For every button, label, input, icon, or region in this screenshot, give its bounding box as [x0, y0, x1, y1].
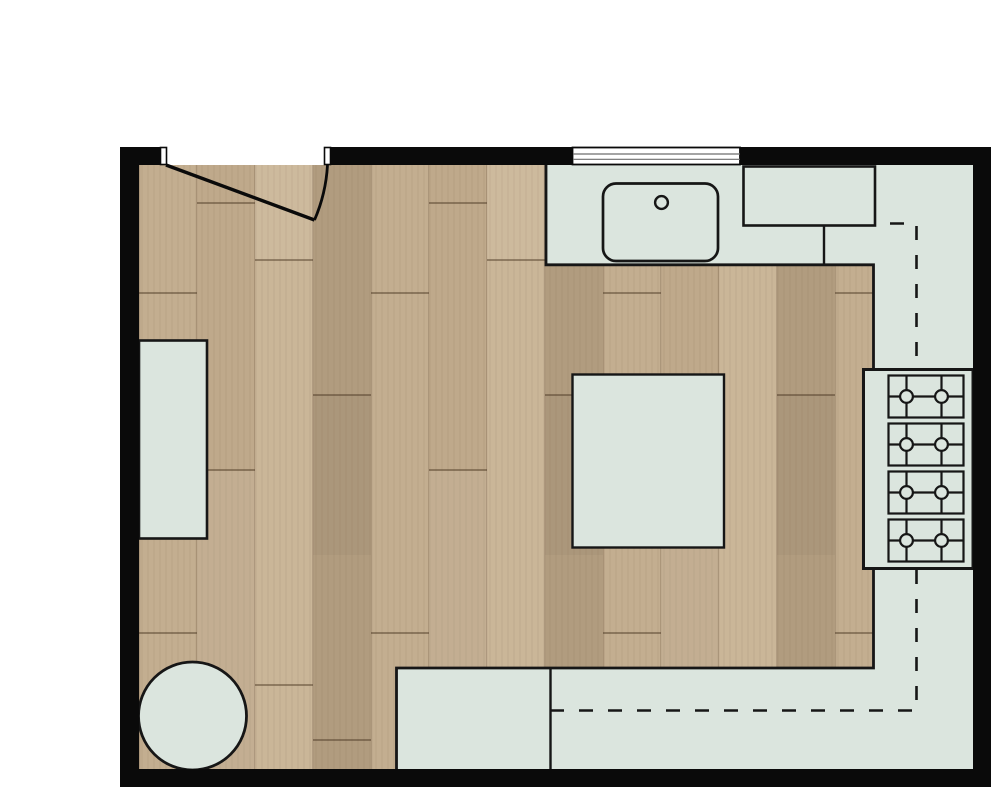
- window: [573, 148, 741, 165]
- round-table: [139, 662, 247, 770]
- wall-left: [120, 147, 139, 787]
- built-in-appliance: [744, 167, 876, 226]
- bottom-counter: [397, 668, 974, 769]
- burner-icon: [935, 390, 948, 403]
- burner-module: [889, 520, 964, 562]
- burner-icon: [900, 534, 913, 547]
- burner-icon: [900, 390, 913, 403]
- door-jamb-left: [161, 148, 167, 165]
- kitchen-island: [573, 375, 725, 548]
- door-jamb-right: [325, 148, 331, 165]
- burner-icon: [900, 486, 913, 499]
- wall-top-right: [740, 147, 991, 165]
- kitchen-floor-plan: [0, 0, 1000, 796]
- kitchen-sink: [603, 184, 718, 262]
- window-frame: [573, 148, 741, 165]
- burner-module: [889, 376, 964, 418]
- burner-icon: [900, 438, 913, 451]
- wall-bottom: [120, 769, 991, 787]
- side-cabinet: [139, 341, 207, 539]
- burner-icon: [935, 534, 948, 547]
- burner-icon: [935, 438, 948, 451]
- burner-module: [889, 472, 964, 514]
- floor-plan-canvas: [0, 0, 1000, 796]
- gas-cooktop: [864, 370, 974, 569]
- wall-top-left-stub: [120, 147, 161, 165]
- wall-top-middle: [331, 147, 573, 165]
- burner-icon: [935, 486, 948, 499]
- burner-module: [889, 424, 964, 466]
- wall-right: [973, 147, 991, 787]
- faucet-icon: [655, 196, 668, 209]
